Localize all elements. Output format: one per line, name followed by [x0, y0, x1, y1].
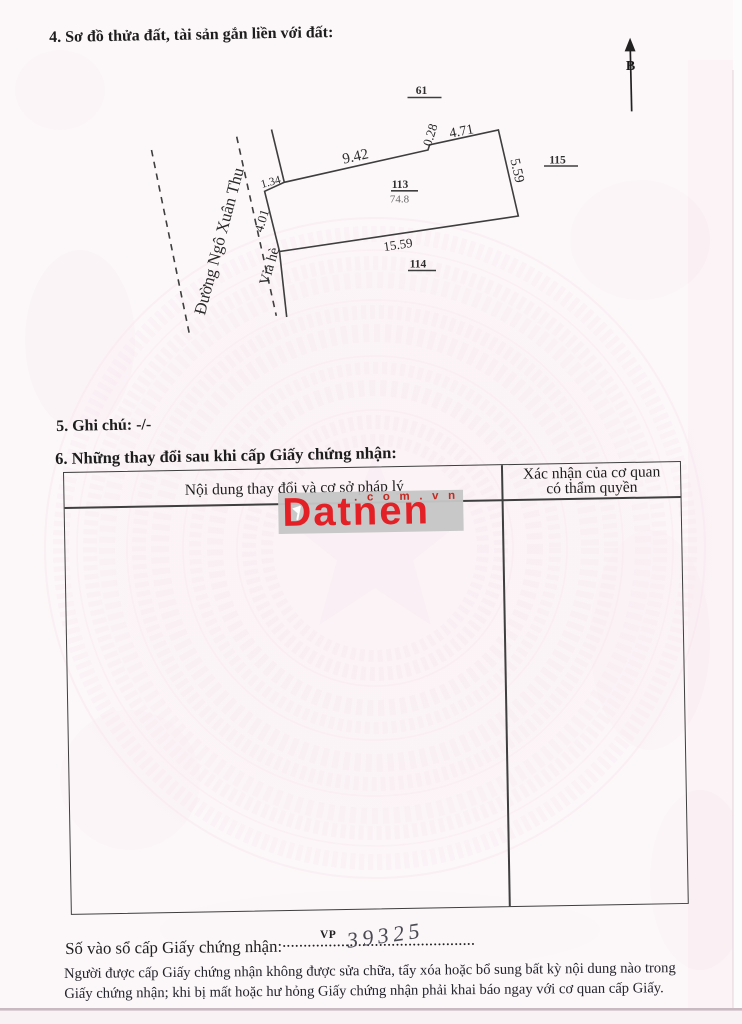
- svg-text:61: 61: [416, 85, 428, 97]
- svg-text:113: 113: [392, 179, 409, 191]
- svg-text:74.8: 74.8: [390, 194, 410, 206]
- svg-text:Đường Ngô Xuân Thu: Đường Ngô Xuân Thu: [190, 165, 248, 317]
- svg-text:115: 115: [549, 155, 566, 167]
- svg-text:15.59: 15.59: [382, 235, 413, 254]
- svg-text:Vỉa hè: Vỉa hè: [257, 246, 283, 287]
- svg-text:114: 114: [410, 259, 427, 271]
- svg-text:4.01: 4.01: [251, 208, 272, 234]
- svg-text:0.28: 0.28: [420, 122, 441, 148]
- svg-text:1.34: 1.34: [259, 174, 282, 191]
- svg-text:4.71: 4.71: [448, 122, 475, 141]
